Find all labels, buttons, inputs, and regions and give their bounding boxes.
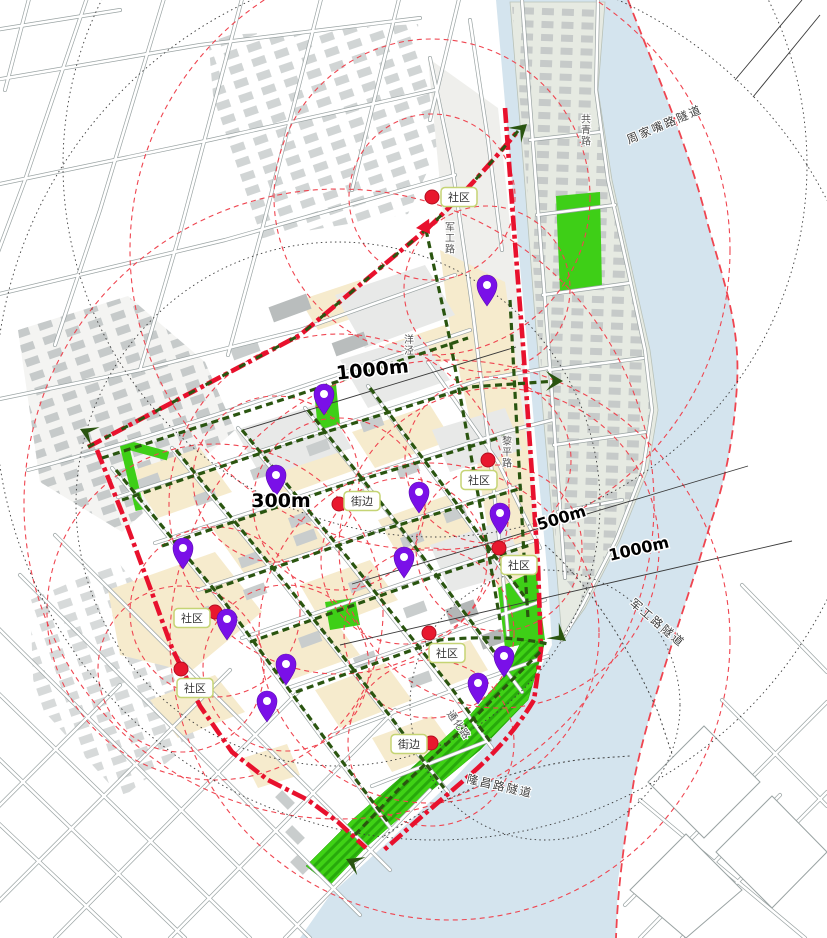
pin-hole	[179, 544, 187, 552]
poi-label-text: 街边	[398, 737, 420, 751]
pin-hole	[400, 553, 408, 561]
poi-label-text: 社区	[436, 646, 458, 660]
poi-label-text: 社区	[184, 681, 206, 695]
pin-hole	[282, 660, 290, 668]
poi-dot[interactable]	[425, 190, 439, 204]
poi-dot[interactable]	[481, 453, 495, 467]
pin-hole	[320, 390, 328, 398]
road-name-label: 洋泾	[402, 333, 414, 356]
pin-hole	[483, 281, 491, 289]
poi-label-text: 社区	[181, 611, 203, 625]
pin-hole	[415, 488, 423, 496]
distance-label: 300m	[251, 490, 310, 512]
poi-dot[interactable]	[174, 662, 188, 676]
poi-label-text: 社区	[448, 190, 470, 204]
planning-map[interactable]: 社区社区社区街边社区社区社区街边 1000m300m500m1000m周家嘴路隧…	[0, 0, 827, 938]
road-name-label: 黎平路	[500, 434, 512, 468]
road-name-label: 军工路	[443, 221, 455, 254]
road-name-label: 共青路	[579, 113, 591, 146]
poi-dot[interactable]	[422, 626, 436, 640]
planning-map-stage: 社区社区社区街边社区社区社区街边 1000m300m500m1000m周家嘴路隧…	[0, 0, 827, 938]
pin-hole	[496, 509, 504, 517]
pin-hole	[223, 615, 231, 623]
poi-label-text: 社区	[468, 473, 490, 487]
pin-hole	[263, 697, 271, 705]
poi-label-text: 街边	[351, 494, 373, 508]
pin-hole	[500, 652, 508, 660]
poi-label-text: 社区	[508, 558, 530, 572]
pin-hole	[474, 679, 482, 687]
poi-dot[interactable]	[492, 541, 506, 555]
pin-hole	[272, 471, 280, 479]
